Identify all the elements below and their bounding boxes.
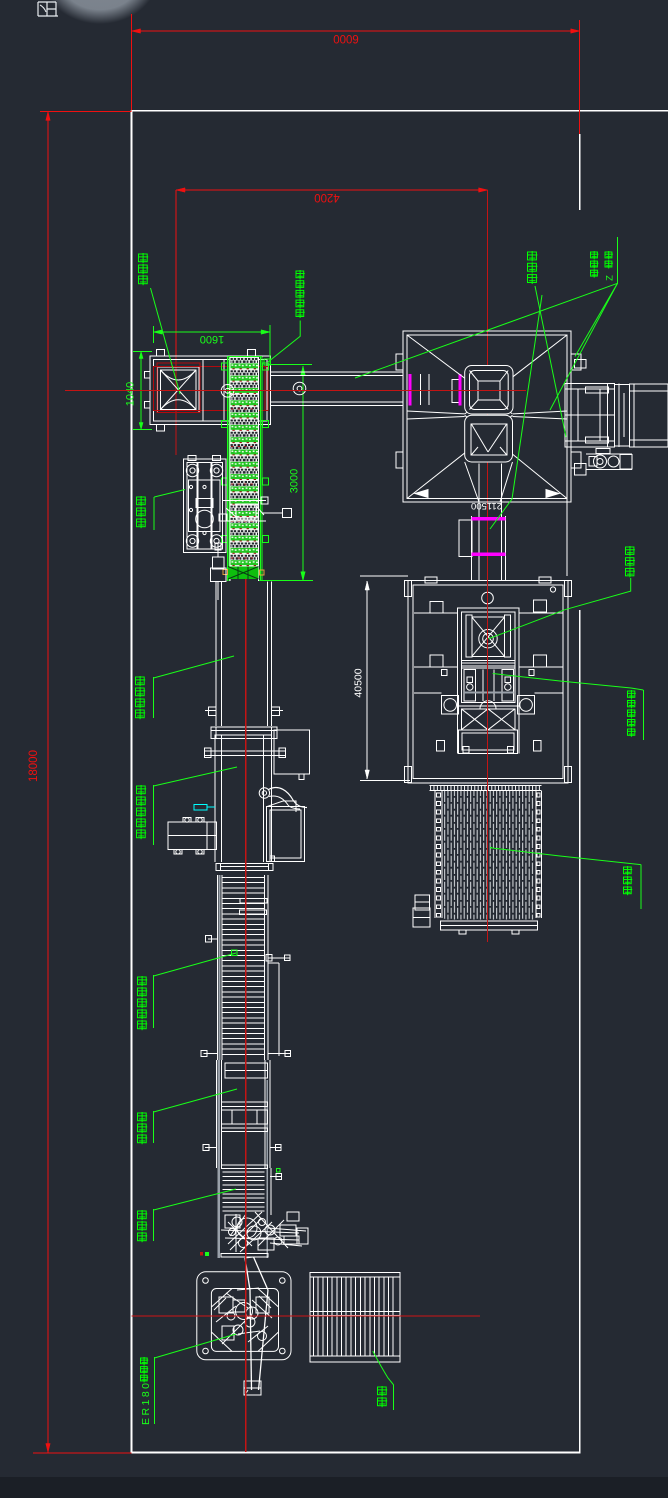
svg-text:3000: 3000 [289, 469, 301, 493]
svg-text:40500: 40500 [353, 668, 365, 697]
svg-text:6000: 6000 [333, 32, 359, 44]
svg-text:1600: 1600 [200, 333, 224, 345]
svg-text:4200: 4200 [314, 191, 340, 203]
svg-text:1040: 1040 [125, 382, 137, 406]
svg-text:ER180: ER180 [140, 1383, 152, 1425]
svg-text:211500: 211500 [471, 500, 502, 511]
svg-text:18000: 18000 [28, 750, 40, 782]
svg-text:Z: Z [605, 275, 616, 281]
